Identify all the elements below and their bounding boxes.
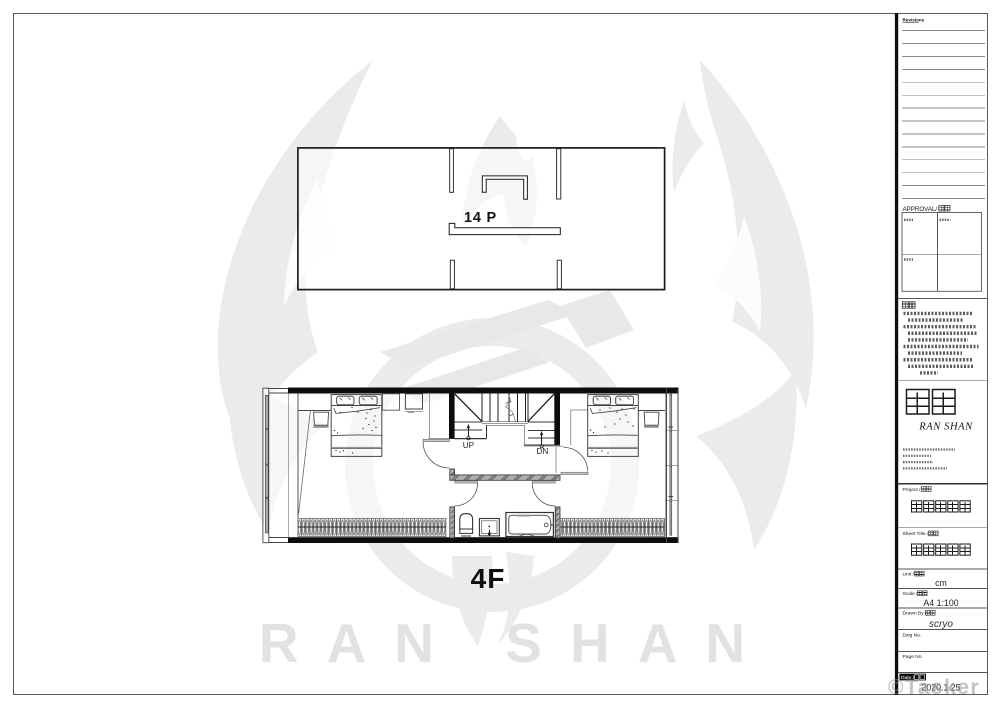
svg-text:Drawn By /: Drawn By /: [903, 611, 928, 617]
svg-text:RAN SHAN: RAN SHAN: [259, 612, 773, 674]
svg-text:Project /: Project /: [903, 487, 922, 493]
svg-text:Scale /: Scale /: [903, 591, 919, 597]
svg-text:©Tasker: ©Tasker: [888, 676, 980, 699]
svg-text:APPROVAL/: APPROVAL/: [903, 206, 938, 213]
svg-text:DN: DN: [536, 447, 548, 456]
svg-text:UP: UP: [463, 441, 475, 450]
svg-text:cm: cm: [935, 578, 947, 588]
svg-text:4F: 4F: [471, 563, 506, 594]
svg-text:A4 1:100: A4 1:100: [923, 598, 958, 608]
svg-text:Sheet Title /: Sheet Title /: [903, 531, 929, 537]
svg-text:Dwg No.: Dwg No.: [903, 632, 922, 638]
svg-text:14 P: 14 P: [464, 210, 497, 226]
svg-text:RAN SHAN: RAN SHAN: [918, 422, 973, 433]
svg-text:scryo: scryo: [929, 619, 953, 630]
svg-text:Unit /: Unit /: [903, 571, 915, 577]
svg-text:Revisions: Revisions: [903, 18, 925, 23]
svg-text:Page No.: Page No.: [903, 654, 923, 660]
